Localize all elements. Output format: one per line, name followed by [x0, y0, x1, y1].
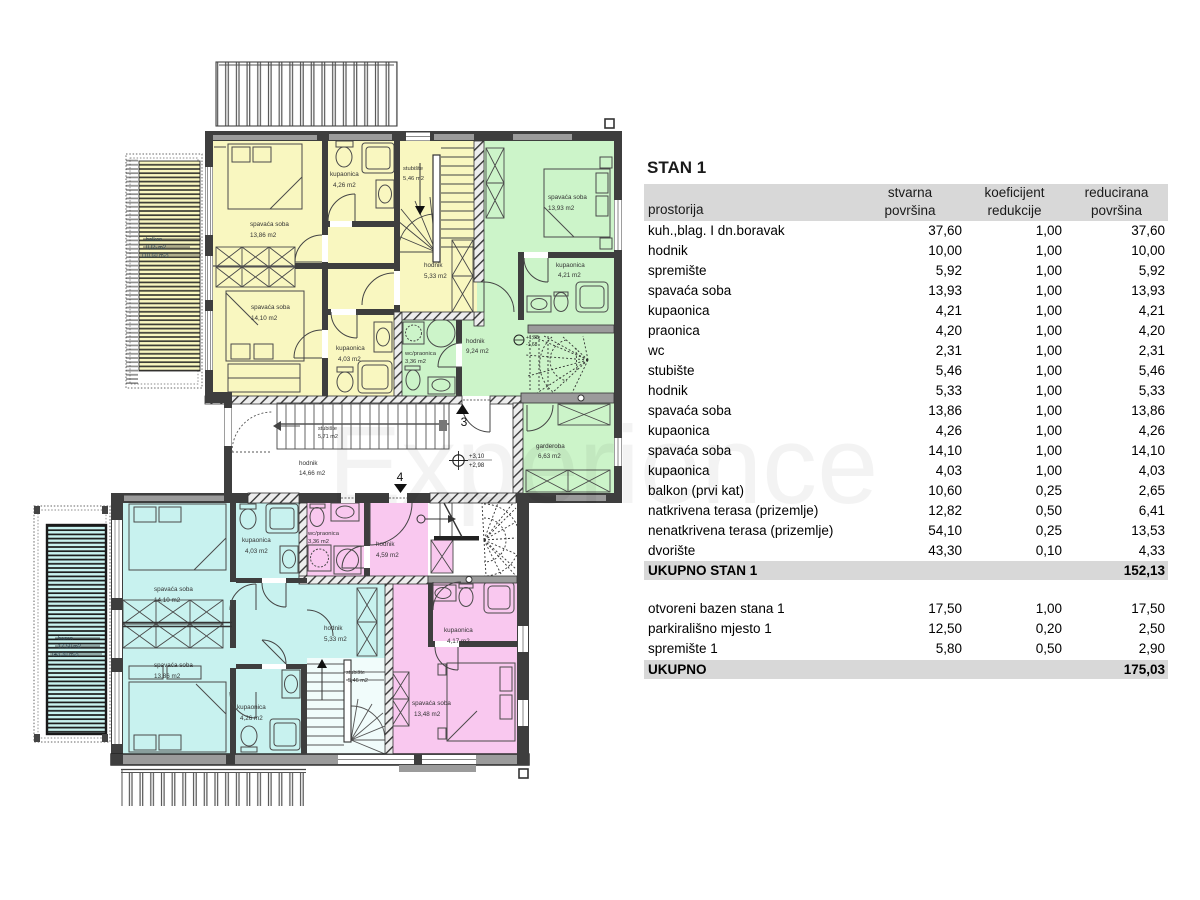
- svg-text:(43,30 m2): (43,30 m2): [52, 652, 79, 658]
- svg-text:hodnik: hodnik: [324, 625, 343, 632]
- svg-text:hodnik: hodnik: [299, 460, 318, 467]
- svg-text:hodnik: hodnik: [376, 541, 395, 548]
- svg-text:13,86 m2: 13,86 m2: [250, 232, 277, 239]
- svg-text:kupaonica: kupaonica: [242, 537, 271, 544]
- svg-text:0,65 m2: 0,65 m2: [146, 245, 166, 251]
- svg-text:5,33 m2: 5,33 m2: [324, 636, 347, 643]
- svg-text:5,33 m2: 5,33 m2: [424, 273, 447, 280]
- svg-text:balkon: balkon: [146, 237, 162, 243]
- svg-text:wc/praonica: wc/praonica: [404, 351, 437, 357]
- svg-text:wc/praonica: wc/praonica: [307, 531, 340, 537]
- svg-text:4,21 m2: 4,21 m2: [558, 272, 581, 279]
- svg-text:3,36 m2: 3,36 m2: [308, 539, 329, 545]
- svg-text:+1,88: +1,88: [526, 335, 539, 341]
- svg-text:spavaća soba: spavaća soba: [251, 304, 290, 311]
- svg-text:4,26 m2: 4,26 m2: [333, 182, 356, 189]
- svg-text:stubište: stubište: [403, 166, 423, 172]
- svg-text:3,36 m2: 3,36 m2: [405, 359, 426, 365]
- svg-text:4,17 m2: 4,17 m2: [447, 638, 470, 645]
- svg-text:hodnik: hodnik: [466, 338, 485, 345]
- svg-text:kupaonica: kupaonica: [556, 262, 585, 269]
- svg-text:(10,60 m2): (10,60 m2): [142, 253, 169, 259]
- svg-text:9,24 m2: 9,24 m2: [466, 348, 489, 355]
- svg-text:spavaća soba: spavaća soba: [154, 586, 193, 593]
- svg-text:spavaća soba: spavaća soba: [154, 662, 193, 669]
- svg-text:14,10 m2: 14,10 m2: [154, 597, 181, 604]
- svg-text:hodnik: hodnik: [424, 262, 443, 269]
- svg-text:4,59 m2: 4,59 m2: [376, 552, 399, 559]
- svg-text:kupaonica: kupaonica: [330, 171, 359, 178]
- svg-text:kupaonica: kupaonica: [444, 627, 473, 634]
- svg-text:stubište: stubište: [346, 670, 365, 676]
- svg-text:spavaća soba: spavaća soba: [412, 700, 451, 707]
- svg-text:bazen: bazen: [58, 636, 73, 642]
- svg-text:4,26 m2: 4,26 m2: [240, 715, 263, 722]
- svg-text:-1,68: -1,68: [526, 342, 538, 348]
- svg-text:14,66 m2: 14,66 m2: [299, 470, 326, 477]
- svg-text:spavaća soba: spavaća soba: [548, 194, 587, 201]
- svg-text:13,48 m2: 13,48 m2: [414, 711, 441, 718]
- svg-text:5,46 m2: 5,46 m2: [403, 176, 424, 182]
- svg-text:4,03 m2: 4,03 m2: [338, 356, 361, 363]
- svg-text:13,93 m2: 13,93 m2: [548, 205, 575, 212]
- svg-text:17,50 m2: 17,50 m2: [58, 644, 81, 650]
- svg-text:4,03 m2: 4,03 m2: [245, 548, 268, 555]
- svg-text:kupaonica: kupaonica: [336, 345, 365, 352]
- svg-text:spavaća soba: spavaća soba: [250, 221, 289, 228]
- svg-text:5,46 m2: 5,46 m2: [348, 678, 368, 684]
- svg-text:kupaonica: kupaonica: [237, 704, 266, 711]
- svg-text:13,86 m2: 13,86 m2: [154, 673, 181, 680]
- svg-text:14,10 m2: 14,10 m2: [251, 315, 278, 322]
